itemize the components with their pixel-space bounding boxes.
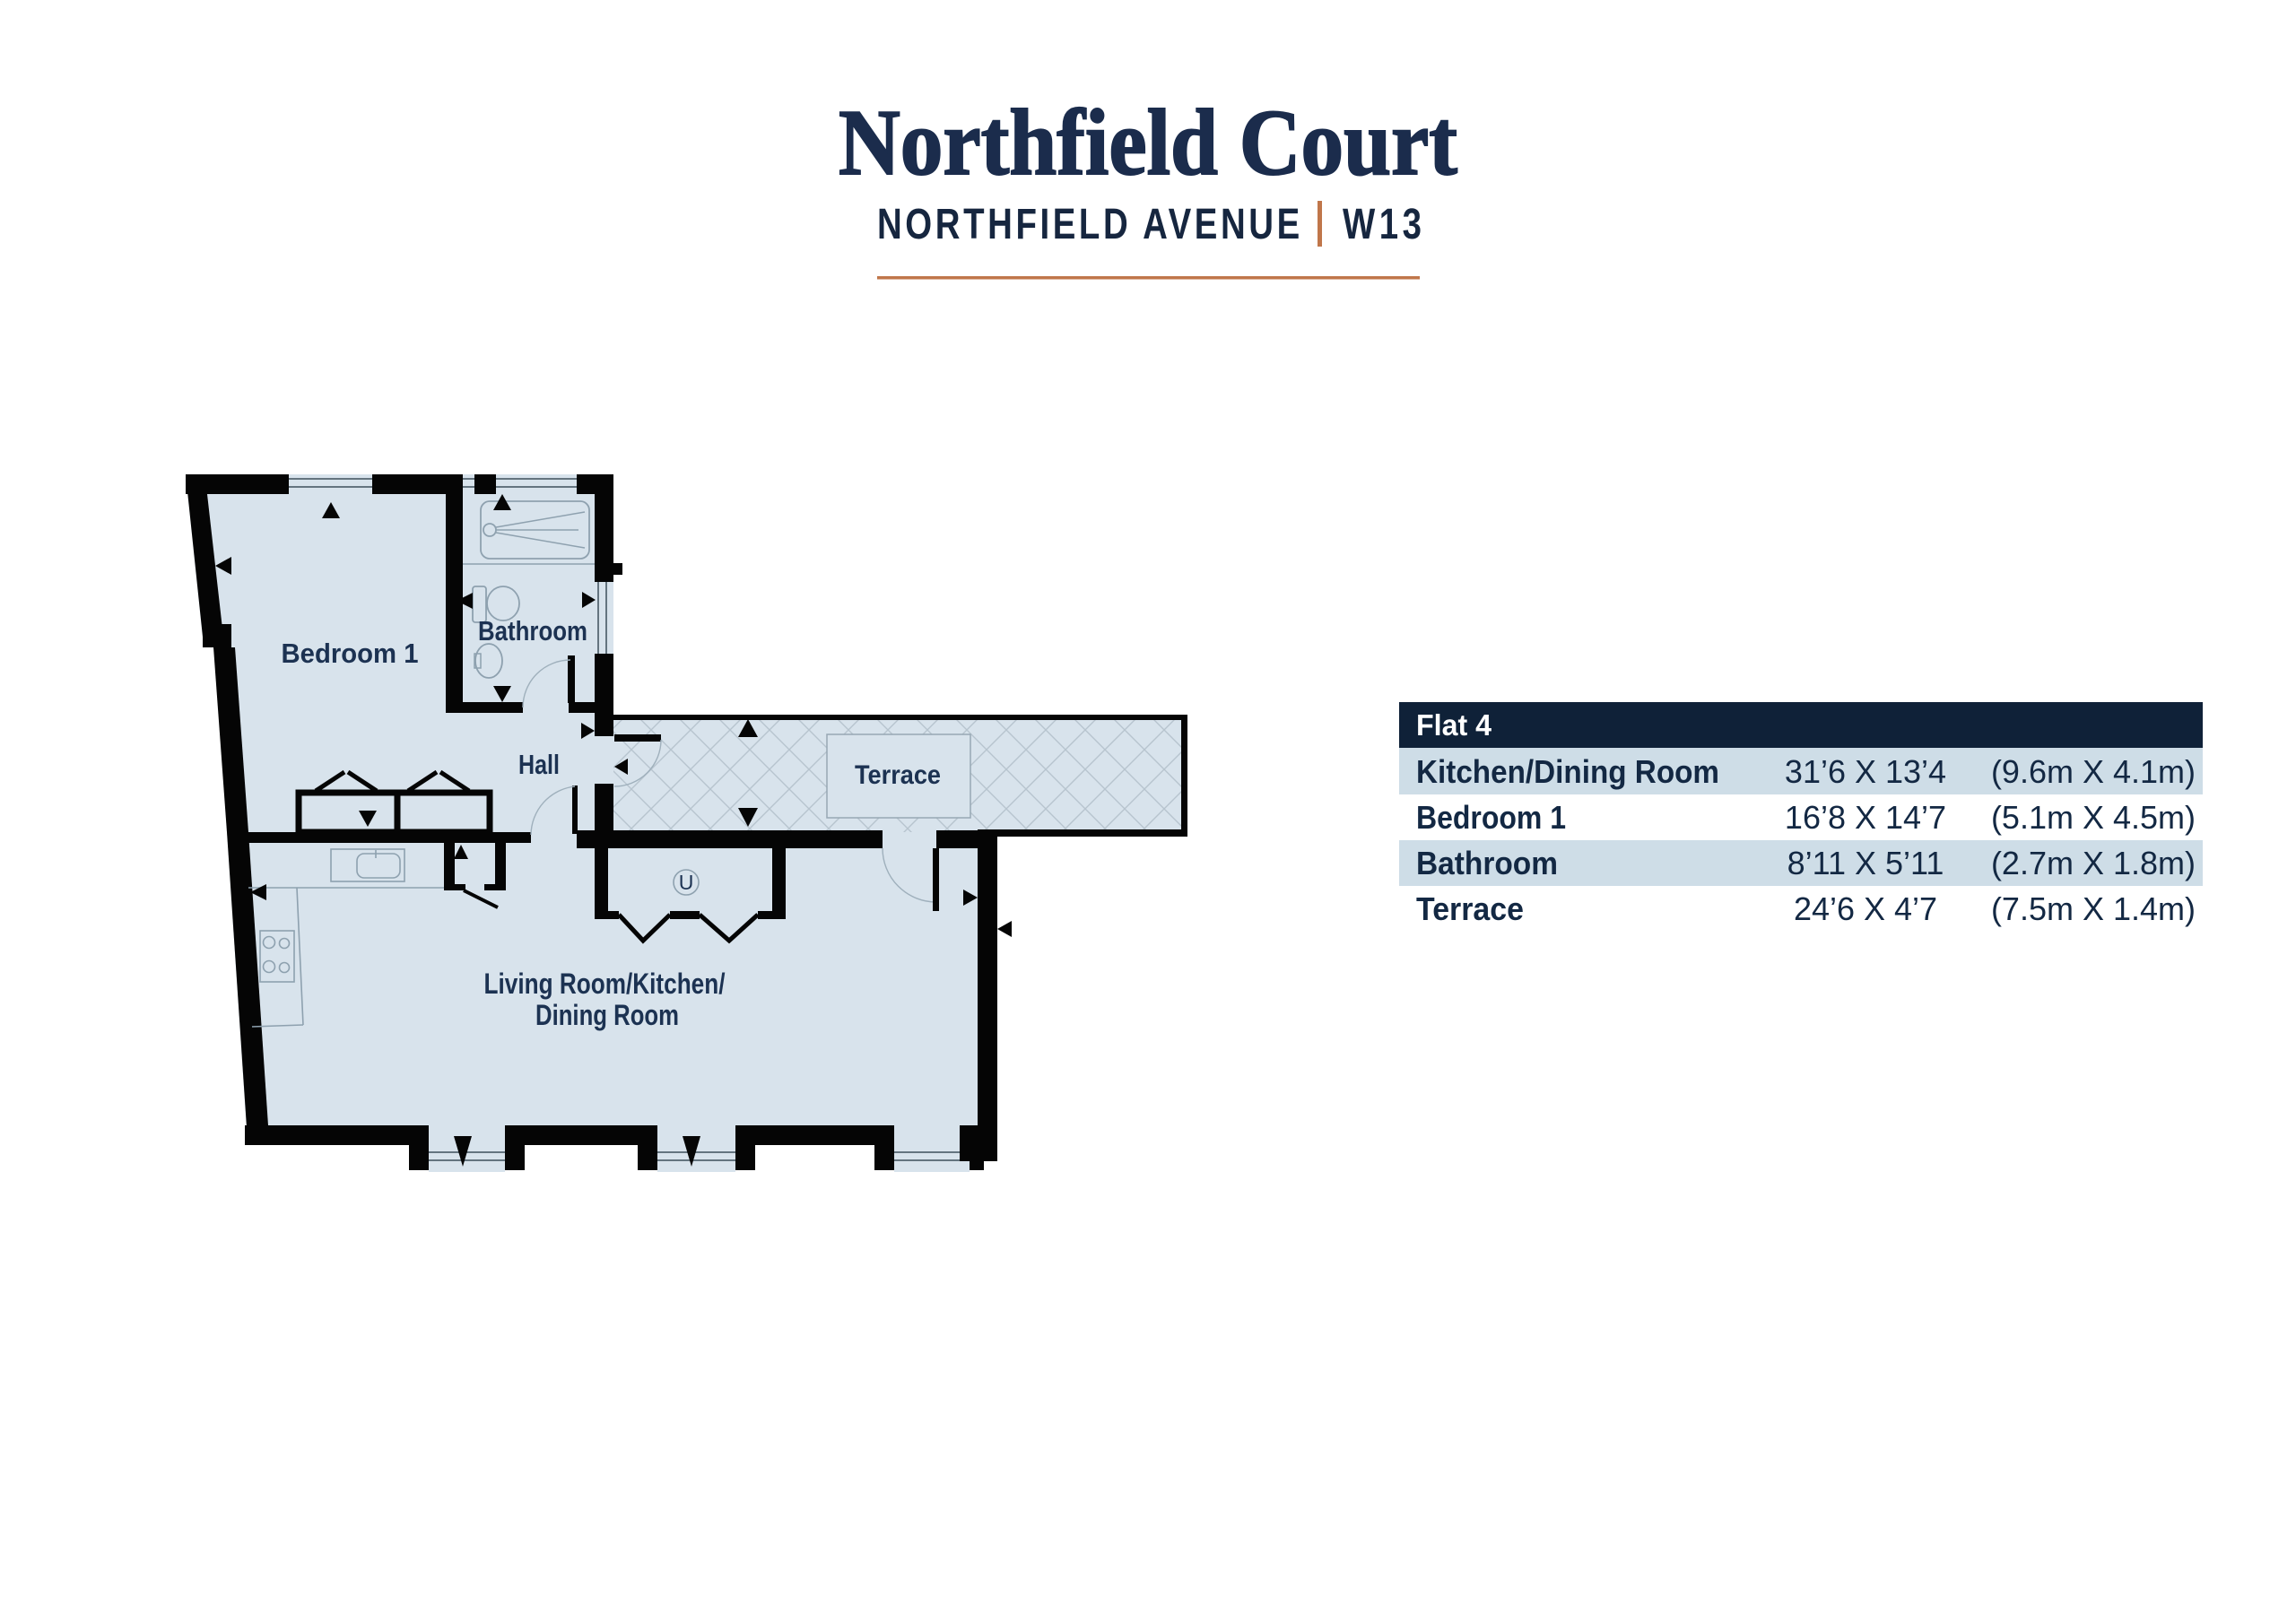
svg-text:Living Room/Kitchen/: Living Room/Kitchen/	[484, 968, 726, 1000]
svg-text:Dining Room: Dining Room	[535, 999, 679, 1031]
svg-text:(7.5m X 1.4m): (7.5m X 1.4m)	[1991, 890, 2196, 927]
svg-text:Kitchen/Dining Room: Kitchen/Dining Room	[1416, 753, 1719, 790]
svg-text:Terrace: Terrace	[1416, 890, 1524, 927]
svg-text:Flat 4: Flat 4	[1416, 708, 1492, 742]
svg-text:(9.6m X 4.1m): (9.6m X 4.1m)	[1991, 753, 2196, 790]
svg-text:Northfield Court: Northfield Court	[839, 90, 1457, 195]
svg-text:Bedroom 1: Bedroom 1	[1416, 799, 1566, 836]
svg-text:Bathroom: Bathroom	[1416, 845, 1558, 881]
svg-text:(2.7m X 1.8m): (2.7m X 1.8m)	[1991, 845, 2196, 881]
svg-text:Bedroom 1: Bedroom 1	[282, 638, 419, 669]
svg-text:W13: W13	[1343, 201, 1422, 248]
svg-text:Bathroom: Bathroom	[478, 615, 587, 647]
svg-text:U: U	[679, 871, 694, 894]
svg-text:24’6 X 4’7: 24’6 X 4’7	[1794, 890, 1937, 927]
svg-text:Terrace: Terrace	[855, 760, 941, 790]
svg-text:NORTHFIELD AVENUE: NORTHFIELD AVENUE	[877, 201, 1300, 248]
svg-text:8’11 X 5’11: 8’11 X 5’11	[1787, 845, 1944, 881]
svg-text:(5.1m X 4.5m): (5.1m X 4.5m)	[1991, 799, 2196, 836]
svg-text:Hall: Hall	[518, 749, 560, 780]
svg-text:16’8 X 14’7: 16’8 X 14’7	[1785, 799, 1946, 836]
svg-text:31’6 X 13’4: 31’6 X 13’4	[1785, 753, 1946, 790]
